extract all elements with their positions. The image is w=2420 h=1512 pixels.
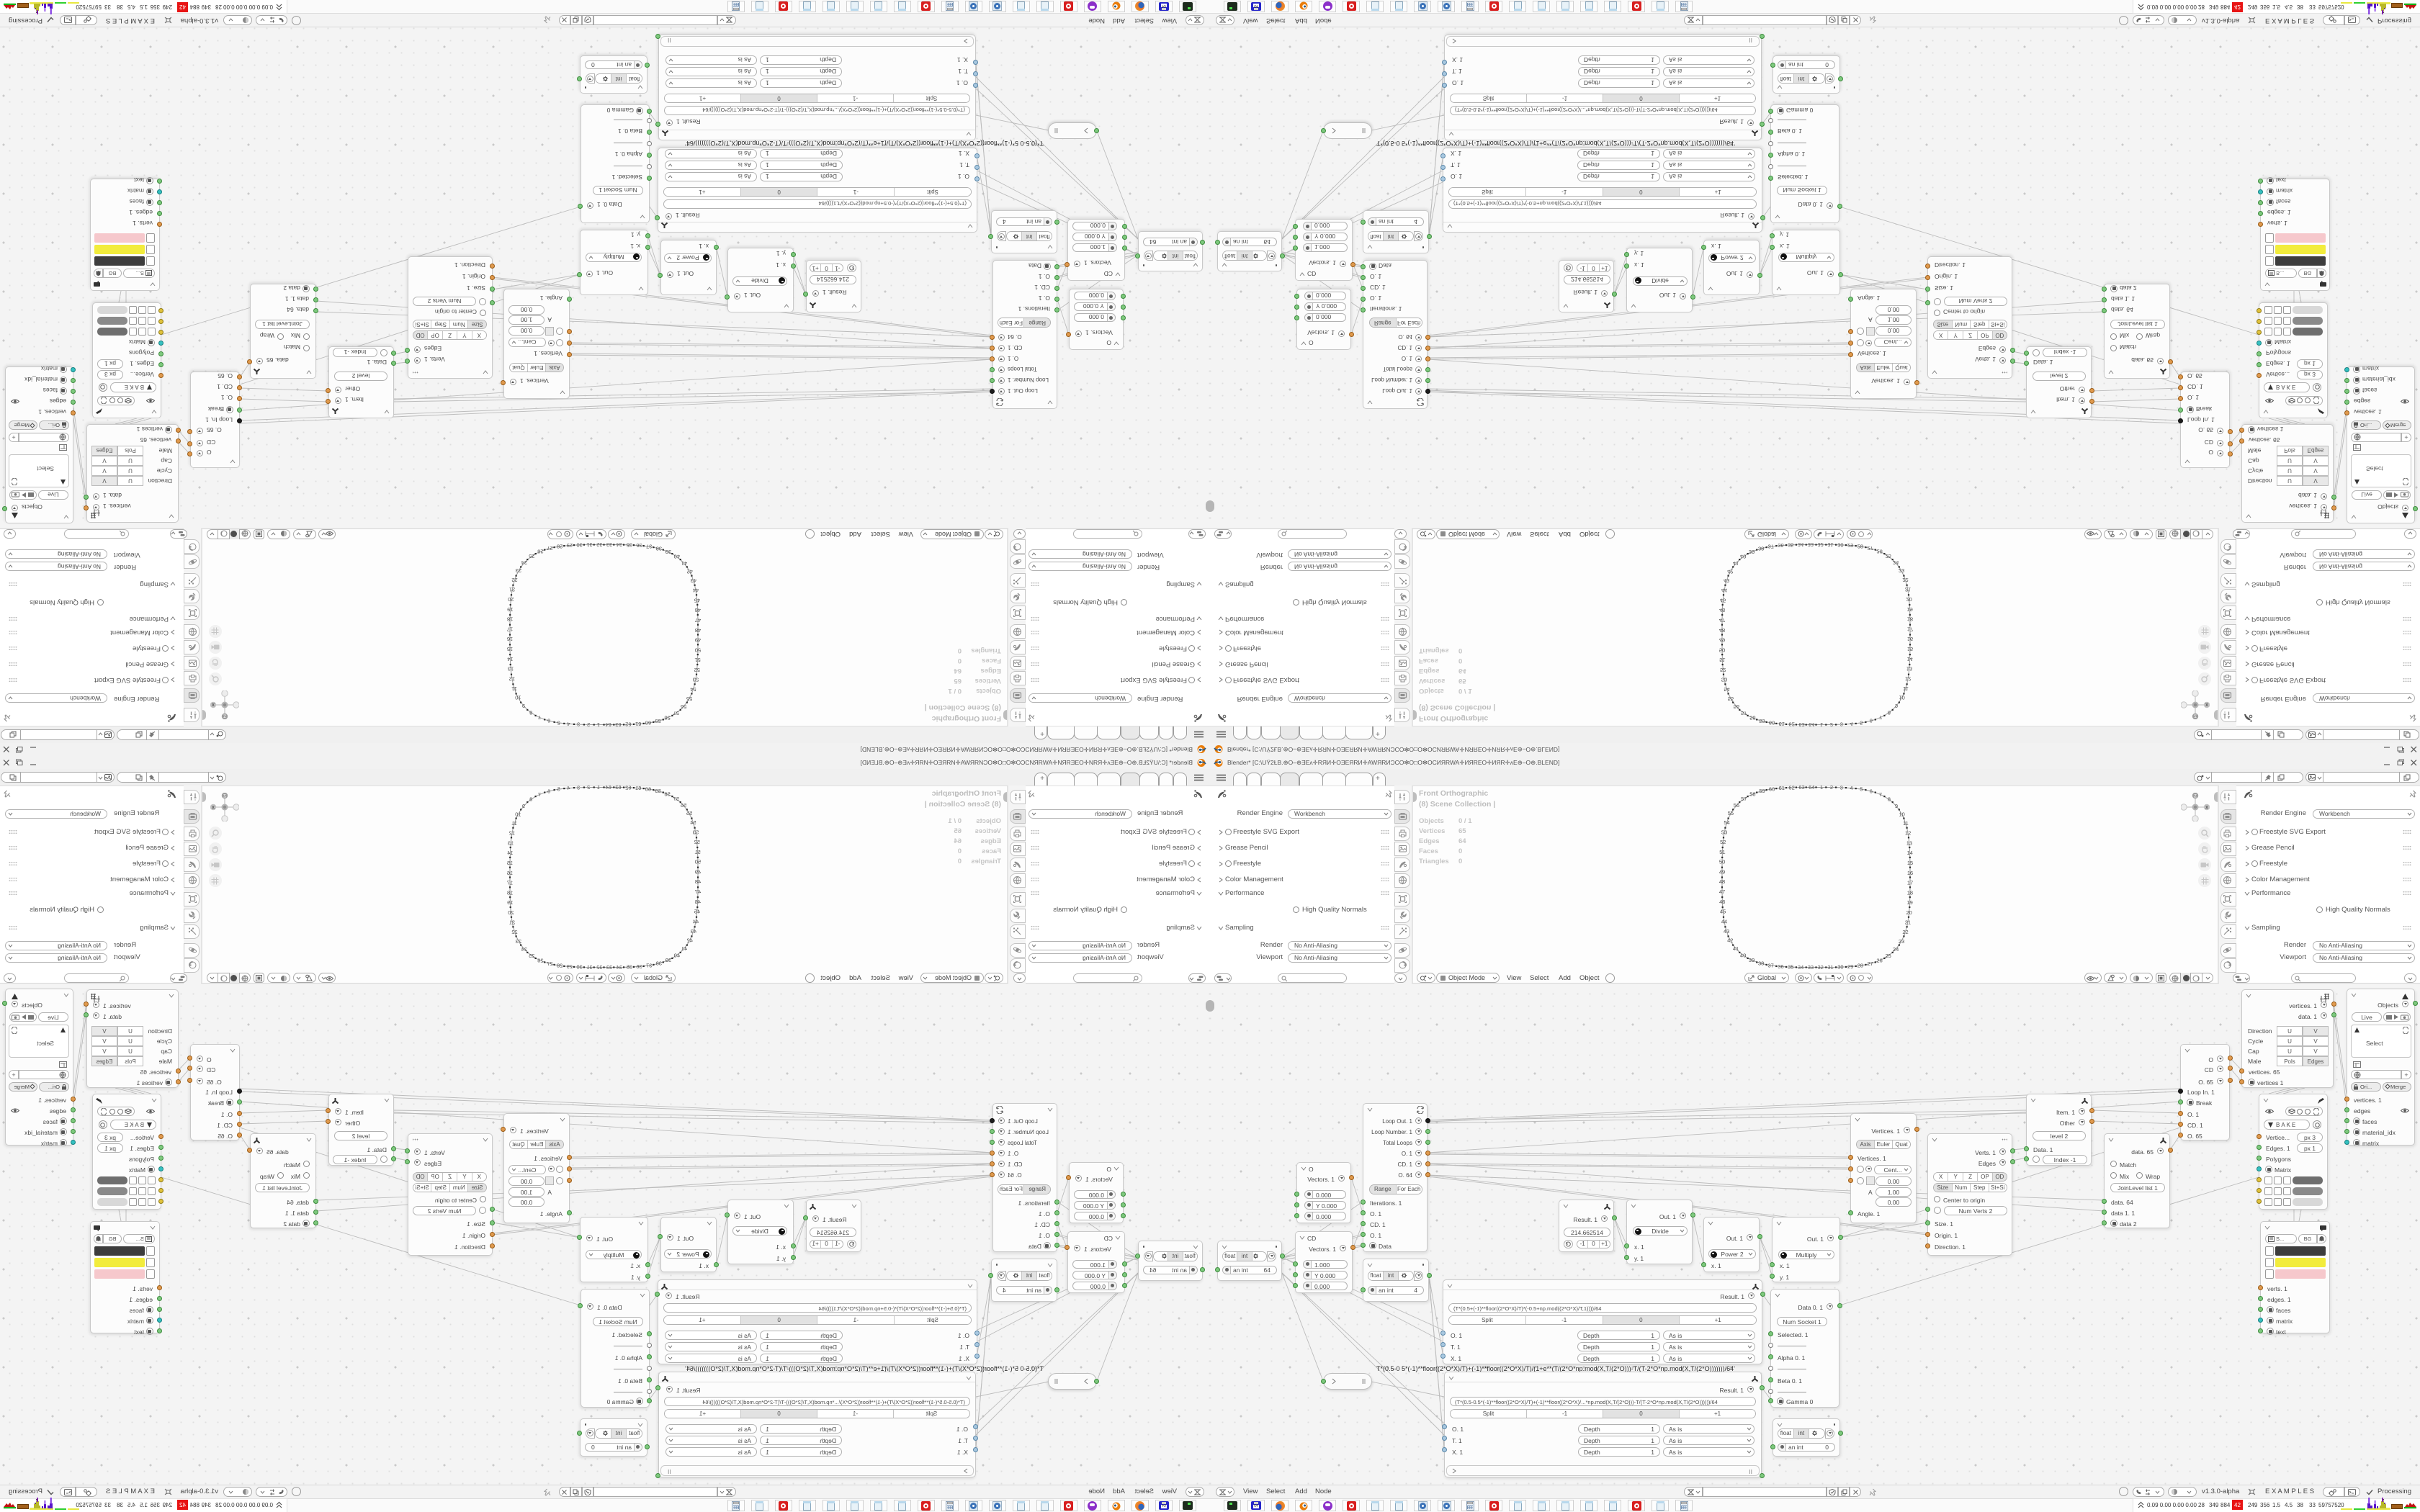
svg-text:18: 18: [1907, 616, 1913, 623]
svg-text:37: 37: [1768, 544, 1774, 550]
svg-text:60: 60: [645, 720, 651, 726]
svg-text:34: 34: [617, 964, 622, 971]
svg-text:46: 46: [695, 899, 701, 905]
svg-text:49: 49: [695, 637, 701, 644]
svg-text:48: 48: [695, 627, 701, 634]
svg-text:51: 51: [1719, 849, 1725, 855]
svg-text:13: 13: [1906, 840, 1912, 846]
svg-text:40: 40: [1740, 554, 1746, 560]
svg-text:X: X: [212, 806, 215, 811]
svg-text:8: 8: [1888, 796, 1891, 803]
svg-text:13: 13: [508, 666, 514, 672]
svg-text:15: 15: [1907, 646, 1913, 652]
svg-text:27: 27: [1867, 960, 1873, 967]
svg-text:51: 51: [694, 657, 700, 663]
svg-text:28: 28: [1857, 543, 1863, 549]
svg-text:2: 2: [1830, 784, 1833, 791]
svg-text:7: 7: [538, 714, 541, 721]
svg-text:20: 20: [1906, 596, 1912, 603]
svg-text:40: 40: [674, 952, 680, 958]
svg-text:44: 44: [693, 588, 699, 594]
svg-text:42: 42: [687, 568, 693, 575]
svg-text:41: 41: [681, 560, 687, 567]
svg-text:33: 33: [1808, 964, 1814, 971]
svg-text:38: 38: [1758, 545, 1764, 552]
svg-text:53: 53: [693, 829, 699, 835]
svg-text:29: 29: [567, 963, 573, 970]
svg-text:31: 31: [1827, 541, 1833, 548]
svg-text:12: 12: [1905, 830, 1911, 837]
svg-text:X: X: [2205, 702, 2208, 706]
svg-text:6: 6: [547, 788, 550, 794]
svg-text:46: 46: [1719, 607, 1725, 613]
svg-text:41: 41: [681, 945, 687, 952]
svg-text:64: 64: [606, 784, 611, 791]
svg-text:11: 11: [1903, 685, 1909, 692]
svg-text:61: 61: [1779, 721, 1785, 727]
svg-text:33: 33: [1808, 541, 1814, 548]
svg-text:43: 43: [1724, 577, 1729, 584]
svg-text:44: 44: [693, 918, 699, 924]
svg-text:48: 48: [1719, 627, 1725, 634]
svg-text:62: 62: [625, 784, 631, 791]
svg-text:33: 33: [606, 964, 612, 971]
svg-text:10: 10: [1899, 695, 1905, 701]
svg-text:54: 54: [1724, 686, 1729, 693]
svg-text:57: 57: [673, 796, 679, 802]
svg-text:29: 29: [1847, 963, 1853, 970]
svg-text:4: 4: [567, 721, 570, 727]
svg-text:53: 53: [1721, 829, 1727, 835]
svg-text:43: 43: [691, 928, 696, 935]
svg-text:49: 49: [1719, 868, 1725, 875]
svg-text:44: 44: [1721, 588, 1727, 594]
svg-text:61: 61: [635, 785, 641, 791]
svg-text:26: 26: [1876, 548, 1882, 554]
svg-text:18: 18: [507, 889, 513, 896]
svg-text:55: 55: [686, 696, 692, 702]
svg-text:16: 16: [507, 870, 513, 876]
svg-text:45: 45: [1720, 597, 1726, 603]
svg-text:24: 24: [1893, 559, 1899, 566]
svg-text:28: 28: [557, 963, 563, 969]
svg-text:30: 30: [1837, 541, 1843, 548]
svg-text:8: 8: [1888, 709, 1891, 716]
svg-text:9: 9: [522, 803, 525, 809]
svg-text:32: 32: [596, 964, 602, 971]
svg-text:19: 19: [1906, 606, 1912, 613]
svg-text:26: 26: [537, 548, 543, 554]
svg-text:59: 59: [655, 788, 660, 794]
svg-text:55: 55: [686, 810, 692, 816]
svg-text:31: 31: [586, 541, 592, 548]
svg-text:30: 30: [576, 541, 582, 548]
svg-text:58: 58: [664, 715, 670, 721]
svg-text:41: 41: [1733, 560, 1739, 567]
svg-text:X: X: [2205, 806, 2208, 811]
svg-text:6: 6: [1870, 718, 1873, 724]
svg-text:3: 3: [577, 784, 580, 791]
svg-text:44: 44: [1721, 918, 1727, 924]
svg-text:39: 39: [1749, 957, 1754, 963]
svg-text:52: 52: [1720, 839, 1726, 845]
svg-text:10: 10: [515, 695, 521, 701]
svg-text:21: 21: [1905, 586, 1911, 593]
svg-text:49: 49: [695, 868, 701, 875]
svg-text:37: 37: [1768, 962, 1774, 968]
svg-text:23: 23: [1899, 567, 1904, 574]
svg-text:11: 11: [511, 820, 517, 827]
svg-text:25: 25: [1886, 953, 1891, 959]
svg-text:39: 39: [665, 549, 671, 555]
svg-text:52: 52: [1720, 667, 1726, 673]
svg-text:22: 22: [1902, 577, 1908, 583]
svg-text:37: 37: [646, 544, 652, 550]
svg-text:2: 2: [1830, 721, 1833, 728]
svg-text:3: 3: [1840, 721, 1843, 728]
svg-text:12: 12: [1905, 675, 1911, 682]
svg-text:59: 59: [1759, 788, 1765, 794]
svg-text:13: 13: [508, 840, 514, 846]
svg-text:31: 31: [1827, 964, 1833, 971]
svg-text:60: 60: [1769, 720, 1775, 726]
svg-text:55: 55: [1728, 810, 1734, 816]
svg-text:2: 2: [587, 784, 590, 791]
svg-text:22: 22: [511, 929, 517, 935]
svg-text:21: 21: [509, 919, 515, 926]
svg-text:47: 47: [695, 617, 701, 624]
svg-text:53: 53: [693, 677, 699, 683]
svg-text:Z: Z: [223, 714, 226, 718]
svg-text:48: 48: [695, 878, 701, 885]
svg-text:6: 6: [547, 718, 550, 724]
svg-text:30: 30: [1837, 964, 1843, 971]
svg-text:15: 15: [1907, 860, 1913, 866]
svg-text:4: 4: [1850, 721, 1852, 727]
svg-text:58: 58: [1749, 791, 1755, 797]
svg-text:35: 35: [627, 541, 632, 548]
svg-text:43: 43: [1724, 928, 1729, 935]
svg-text:37: 37: [646, 962, 652, 968]
svg-text:14: 14: [1907, 656, 1913, 662]
svg-text:56: 56: [1734, 703, 1739, 710]
svg-text:46: 46: [695, 607, 701, 613]
svg-text:8: 8: [529, 796, 532, 803]
svg-text:23: 23: [516, 567, 521, 574]
svg-text:39: 39: [1749, 549, 1754, 555]
svg-text:36: 36: [636, 963, 642, 970]
svg-text:5: 5: [557, 719, 560, 726]
svg-text:7: 7: [538, 791, 541, 798]
svg-text:62: 62: [1788, 721, 1794, 728]
svg-text:56: 56: [681, 802, 686, 809]
svg-text:21: 21: [509, 586, 515, 593]
svg-text:63: 63: [1798, 721, 1804, 728]
svg-text:62: 62: [625, 721, 631, 728]
svg-text:1: 1: [597, 784, 600, 791]
svg-text:58: 58: [664, 791, 670, 797]
svg-text:54: 54: [690, 686, 696, 693]
svg-text:61: 61: [635, 721, 641, 727]
svg-text:42: 42: [687, 937, 693, 944]
svg-text:25: 25: [1886, 553, 1891, 559]
svg-text:17: 17: [1907, 626, 1913, 632]
svg-text:14: 14: [1907, 850, 1913, 856]
svg-text:20: 20: [1906, 909, 1912, 916]
svg-text:4: 4: [1850, 785, 1852, 791]
svg-text:53: 53: [1721, 677, 1727, 683]
svg-text:61: 61: [1779, 785, 1785, 791]
svg-text:34: 34: [1798, 964, 1803, 971]
svg-text:16: 16: [507, 636, 513, 642]
svg-text:50: 50: [695, 859, 701, 865]
svg-text:32: 32: [1818, 964, 1824, 971]
svg-text:24: 24: [521, 946, 527, 953]
svg-text:9: 9: [522, 703, 525, 709]
svg-text:59: 59: [655, 718, 660, 724]
svg-text:26: 26: [1876, 958, 1882, 964]
svg-text:28: 28: [1857, 963, 1863, 969]
svg-text:64: 64: [1809, 784, 1814, 791]
svg-text:50: 50: [695, 647, 701, 653]
svg-text:46: 46: [1719, 899, 1725, 905]
svg-text:2: 2: [587, 721, 590, 728]
svg-text:3: 3: [577, 721, 580, 728]
svg-text:27: 27: [547, 960, 552, 967]
svg-text:9: 9: [1895, 803, 1898, 809]
svg-text:43: 43: [691, 577, 696, 584]
svg-text:30: 30: [576, 964, 582, 971]
svg-text:12: 12: [509, 675, 515, 682]
svg-text:57: 57: [673, 710, 679, 716]
svg-text:19: 19: [507, 606, 513, 613]
svg-text:1: 1: [1820, 721, 1823, 728]
svg-text:47: 47: [695, 888, 701, 895]
svg-text:1: 1: [1820, 784, 1823, 791]
svg-text:20: 20: [508, 909, 514, 916]
svg-text:23: 23: [516, 938, 521, 945]
svg-text:32: 32: [1818, 541, 1824, 548]
svg-text:25: 25: [529, 953, 534, 959]
svg-text:14: 14: [507, 850, 513, 856]
svg-text:40: 40: [674, 554, 680, 560]
svg-text:22: 22: [511, 577, 517, 583]
svg-text:39: 39: [665, 957, 671, 963]
svg-text:49: 49: [1719, 637, 1725, 644]
svg-text:54: 54: [1724, 819, 1729, 826]
svg-text:22: 22: [1902, 929, 1908, 935]
svg-text:8: 8: [529, 709, 532, 716]
svg-text:17: 17: [1907, 880, 1913, 886]
svg-text:24: 24: [521, 559, 527, 566]
svg-text:63: 63: [615, 721, 621, 728]
svg-text:36: 36: [1778, 963, 1783, 970]
svg-text:19: 19: [507, 899, 513, 906]
svg-text:7: 7: [1879, 791, 1882, 798]
svg-text:48: 48: [1719, 878, 1725, 885]
svg-text:34: 34: [617, 541, 622, 548]
svg-text:60: 60: [1769, 786, 1775, 792]
svg-text:13: 13: [1906, 666, 1912, 672]
svg-text:7: 7: [1879, 714, 1882, 721]
svg-text:16: 16: [1907, 636, 1913, 642]
svg-text:18: 18: [1907, 889, 1913, 896]
svg-text:24: 24: [1893, 946, 1899, 953]
svg-text:64: 64: [1809, 721, 1814, 728]
svg-text:45: 45: [1720, 909, 1726, 915]
svg-text:Z: Z: [2194, 714, 2197, 718]
svg-text:28: 28: [557, 543, 563, 549]
svg-text:15: 15: [507, 646, 513, 652]
svg-text:64: 64: [606, 721, 611, 728]
svg-text:5: 5: [1860, 719, 1863, 726]
svg-text:5: 5: [557, 786, 560, 793]
svg-text:X: X: [212, 702, 215, 706]
svg-text:45: 45: [694, 597, 700, 603]
svg-text:58: 58: [1749, 715, 1755, 721]
svg-text:29: 29: [1847, 542, 1853, 549]
svg-text:51: 51: [1719, 657, 1725, 663]
svg-text:12: 12: [509, 830, 515, 837]
svg-text:38: 38: [656, 960, 662, 967]
svg-text:38: 38: [656, 545, 662, 552]
svg-text:42: 42: [1727, 568, 1733, 575]
svg-text:16: 16: [1907, 870, 1913, 876]
svg-text:47: 47: [1719, 888, 1725, 895]
svg-text:9: 9: [1895, 703, 1898, 709]
svg-text:54: 54: [690, 819, 696, 826]
svg-text:41: 41: [1733, 945, 1739, 952]
svg-text:40: 40: [1740, 952, 1746, 958]
svg-text:62: 62: [1788, 784, 1794, 791]
svg-text:42: 42: [1727, 937, 1733, 944]
svg-text:10: 10: [1899, 811, 1905, 817]
svg-text:35: 35: [1788, 964, 1793, 971]
svg-text:35: 35: [1788, 541, 1793, 548]
svg-text:17: 17: [507, 880, 513, 886]
svg-text:5: 5: [1860, 786, 1863, 793]
svg-text:31: 31: [586, 964, 592, 971]
svg-text:27: 27: [1867, 545, 1873, 552]
svg-text:36: 36: [636, 542, 642, 549]
svg-text:19: 19: [1906, 899, 1912, 906]
svg-text:45: 45: [694, 909, 700, 915]
svg-text:29: 29: [567, 542, 573, 549]
svg-text:11: 11: [1903, 820, 1909, 827]
svg-text:57: 57: [1741, 710, 1747, 716]
svg-text:34: 34: [1798, 541, 1803, 548]
svg-text:27: 27: [547, 545, 552, 552]
svg-text:10: 10: [515, 811, 521, 817]
svg-text:20: 20: [508, 596, 514, 603]
svg-text:63: 63: [615, 784, 621, 791]
svg-text:50: 50: [1719, 647, 1725, 653]
svg-text:35: 35: [627, 964, 632, 971]
svg-text:14: 14: [507, 656, 513, 662]
svg-text:15: 15: [507, 860, 513, 866]
svg-text:Z: Z: [223, 795, 226, 799]
svg-text:6: 6: [1870, 788, 1873, 794]
svg-text:33: 33: [606, 541, 612, 548]
svg-text:47: 47: [1719, 617, 1725, 624]
svg-text:57: 57: [1741, 796, 1747, 802]
svg-text:56: 56: [1734, 802, 1739, 809]
svg-text:21: 21: [1905, 919, 1911, 926]
svg-text:Z: Z: [2194, 795, 2197, 799]
svg-text:25: 25: [529, 553, 534, 559]
svg-text:56: 56: [681, 703, 686, 710]
svg-text:38: 38: [1758, 960, 1764, 967]
svg-text:50: 50: [1719, 859, 1725, 865]
svg-text:36: 36: [1778, 542, 1783, 549]
svg-text:60: 60: [645, 786, 651, 792]
svg-text:59: 59: [1759, 718, 1765, 724]
svg-text:52: 52: [694, 839, 700, 845]
svg-text:32: 32: [596, 541, 602, 548]
svg-text:17: 17: [507, 626, 513, 632]
svg-text:51: 51: [694, 849, 700, 855]
svg-text:26: 26: [537, 958, 543, 964]
svg-text:4: 4: [567, 785, 570, 791]
svg-text:1: 1: [597, 721, 600, 728]
svg-text:3: 3: [1840, 784, 1843, 791]
svg-text:11: 11: [511, 685, 517, 692]
svg-text:55: 55: [1728, 696, 1734, 702]
svg-text:52: 52: [694, 667, 700, 673]
svg-text:23: 23: [1899, 938, 1904, 945]
svg-text:18: 18: [507, 616, 513, 623]
svg-text:63: 63: [1798, 784, 1804, 791]
